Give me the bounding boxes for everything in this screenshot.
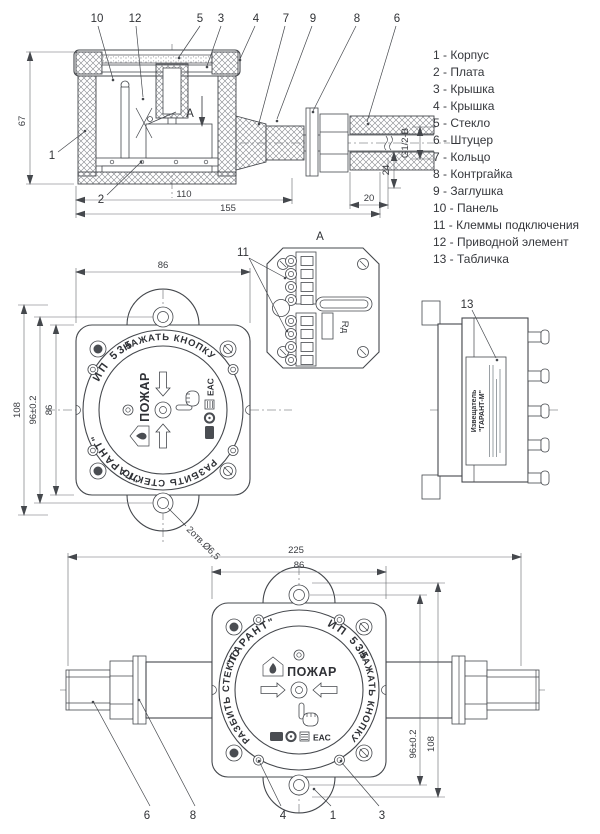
flange [438,324,462,476]
nameplate-line1: Извещатель [471,389,478,432]
left-locknut [133,656,146,724]
dim-155: 155 [220,203,236,214]
ring-part [236,116,266,170]
dim-86: 86 [294,560,305,571]
dim-20: 20 [364,193,375,204]
front-face-rotated [83,330,243,490]
front-view: 86 86 96±0.2 108 2отв.Ø6,5 [12,260,292,563]
legend-item-7: 7 - Кольцо [433,149,579,166]
dim-108: 108 [426,736,437,752]
right-neck [386,662,452,718]
callout-2: 2 [98,194,104,206]
callout-8: 8 [190,810,196,822]
top-mount-hole [289,585,309,605]
dim-96: 96±0.2 [408,730,419,759]
side-view: Извещатель "ГАРАНТ-М" 13 [422,299,558,499]
bottom-mount-hole [289,775,309,795]
right-fitting [386,656,539,724]
callout-10: 10 [91,13,104,25]
legend-item-12: 12 - Приводной элемент [433,234,579,251]
left-hex-nut [110,661,133,719]
switch-block [146,124,212,158]
terminal-block-lower [286,313,317,366]
left-pipe [66,670,110,710]
legend-item-13: 13 - Табличка [433,251,579,268]
technical-drawing-page: "ГАРАНТ" ИП 535 РАЗБИТЬ СТЕКЛО НАЖАТЬ КН… [0,0,600,834]
lid-right-cap [212,52,238,74]
callout-11: 11 [237,247,249,259]
lid-left-cap [76,52,102,74]
bottom-view: 225 86 96±0.2 108 6 8 4 1 3 [60,545,548,822]
top-mount-hole [153,307,173,327]
dim-67: 67 [17,116,28,127]
dim-110: 110 [176,189,191,200]
terminal-block-upper [286,252,317,306]
housing-base [78,172,236,184]
drive-rod [121,87,129,158]
callout-3: 3 [379,810,385,822]
dim-86-left: 86 [44,405,55,416]
callout-1: 1 [49,150,55,162]
callout-12: 12 [129,13,142,25]
resistor-label: Rд [339,321,350,334]
legend-item-10: 10 - Панель [433,200,579,217]
view-a-arrow-label: A [186,108,194,120]
legend-item-1: 1 - Корпус [433,47,579,64]
right-hex-nut [465,661,487,719]
dim-96: 96±0.2 [28,396,39,425]
right-pipe [487,670,539,710]
callout-4: 4 [253,13,260,25]
glass-strip [102,55,212,63]
callout-6: 6 [394,13,400,25]
callout-5: 5 [197,13,203,25]
view-a: A Rд 11 [237,231,379,368]
callout-3: 3 [218,13,224,25]
dim-86-top: 86 [158,260,169,271]
bottom-ear-side [422,475,440,499]
callout-13: 13 [461,299,474,311]
dim-108: 108 [12,402,23,418]
top-ear-side [422,301,440,325]
union-body-top [350,116,434,134]
view-a-label: A [316,231,324,243]
legend-item-5: 5 - Стекло [433,115,579,132]
callout-1: 1 [330,810,336,822]
dim-thread: G1/2-B [400,128,411,158]
bottom-face [219,610,379,770]
connector-pins [528,330,549,485]
pcb-plate [96,158,218,166]
callout-6: 6 [144,810,150,822]
legend-item-9: 9 - Заглушка [433,183,579,200]
parts-legend: 1 - Корпус 2 - Плата 3 - Крышка 4 - Крыш… [433,47,579,268]
legend-item-6: 6 - Штуцер [433,132,579,149]
hexnut-section [320,114,348,172]
legend-item-2: 2 - Плата [433,64,579,81]
callout-4: 4 [280,810,287,822]
resistor [322,313,333,339]
right-locknut [452,656,465,724]
housing-right-wall [218,76,236,176]
legend-item-11: 11 - Клеммы подключения [433,217,579,234]
locknut-section [306,108,318,176]
plug-part [266,126,304,160]
nameplate-line2: "ГАРАНТ-М" [479,390,486,432]
dim-225: 225 [288,545,304,556]
callout-9: 9 [310,13,316,25]
legend-item-3: 3 - Крышка [433,81,579,98]
union-body-bottom [350,152,434,170]
dim-24: 24 [381,165,392,176]
legend-item-4: 4 - Крышка [433,98,579,115]
section-view: A 67 110 155 20 24 G1/2-B [17,13,450,218]
legend-item-8: 8 - Контргайка [433,166,579,183]
callout-8: 8 [354,13,360,25]
left-fitting [66,656,212,724]
left-neck [146,662,212,718]
callout-7: 7 [283,13,289,25]
housing-left-wall [78,76,96,176]
slot [316,297,372,311]
